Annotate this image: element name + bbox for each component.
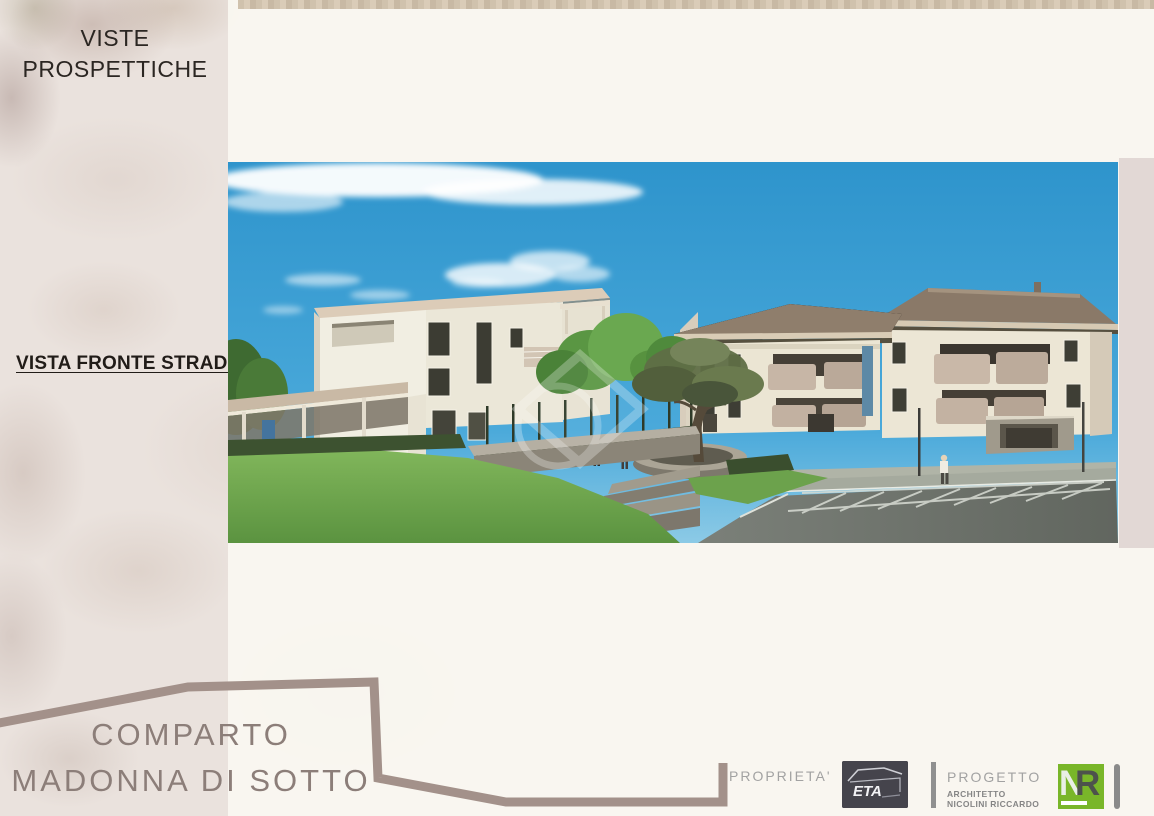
right-edge-tint (1119, 158, 1154, 548)
eta-logo-icon: ETA (842, 761, 908, 808)
nr-logo: N R (1058, 764, 1104, 809)
project-title-line1: COMPARTO (2, 712, 380, 758)
page-title-line1: VISTE (10, 23, 220, 54)
view-label: VISTA FRONTE STRADA (16, 353, 241, 375)
architect-title: ARCHITETTO (947, 789, 1006, 799)
page-title: VISTE PROSPETTICHE (10, 23, 220, 85)
presentation-slide: VISTE PROSPETTICHE VISTA FRONTE STRADA (0, 0, 1154, 816)
footer-end-divider (1114, 764, 1120, 809)
perspective-rendering-image (228, 162, 1118, 543)
rendering-svg (228, 162, 1118, 543)
project-label: PROGETTO (947, 769, 1041, 785)
footer-divider (931, 762, 936, 808)
nr-logo-underline (1061, 801, 1087, 805)
eta-logo-text: ETA (853, 783, 882, 800)
owner-label: PROPRIETA' (729, 768, 832, 784)
project-title: COMPARTO MADONNA DI SOTTO (2, 712, 380, 804)
top-border-texture (238, 0, 1154, 9)
architect-name: NICOLINI RICCARDO (947, 799, 1039, 809)
eta-logo: ETA (842, 761, 908, 808)
nr-logo-letter-r: R (1075, 766, 1100, 801)
project-title-line2: MADONNA DI SOTTO (2, 758, 380, 804)
page-title-line2: PROSPETTICHE (10, 54, 220, 85)
right-building (874, 282, 1118, 454)
